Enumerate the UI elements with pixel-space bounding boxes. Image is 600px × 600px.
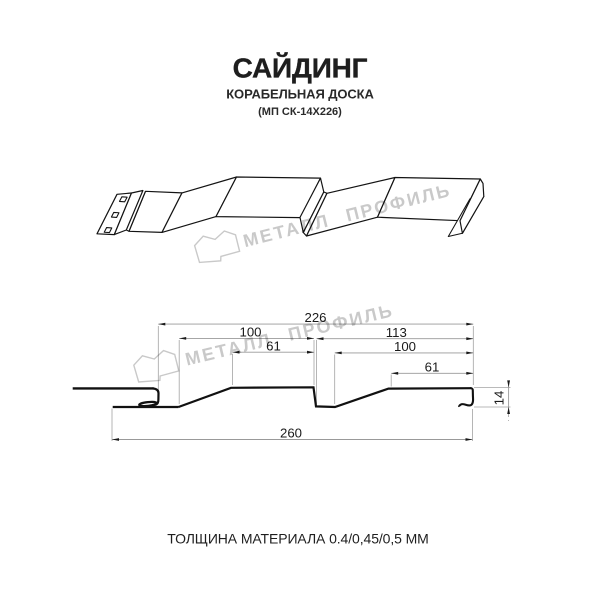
- svg-text:260: 260: [280, 426, 302, 441]
- svg-text:ТОЛЩИНА МАТЕРИАЛА 0.4/0,45/0,5: ТОЛЩИНА МАТЕРИАЛА 0.4/0,45/0,5 ММ: [167, 531, 429, 547]
- svg-text:61: 61: [425, 359, 440, 374]
- svg-text:113: 113: [386, 325, 407, 340]
- svg-text:14: 14: [492, 391, 507, 406]
- svg-text:КОРАБЕЛЬНАЯ ДОСКА: КОРАБЕЛЬНАЯ ДОСКА: [226, 86, 374, 101]
- svg-text:(МП СК-14Х226): (МП СК-14Х226): [258, 106, 342, 118]
- svg-text:САЙДИНГ: САЙДИНГ: [233, 52, 368, 84]
- svg-text:100: 100: [394, 339, 416, 354]
